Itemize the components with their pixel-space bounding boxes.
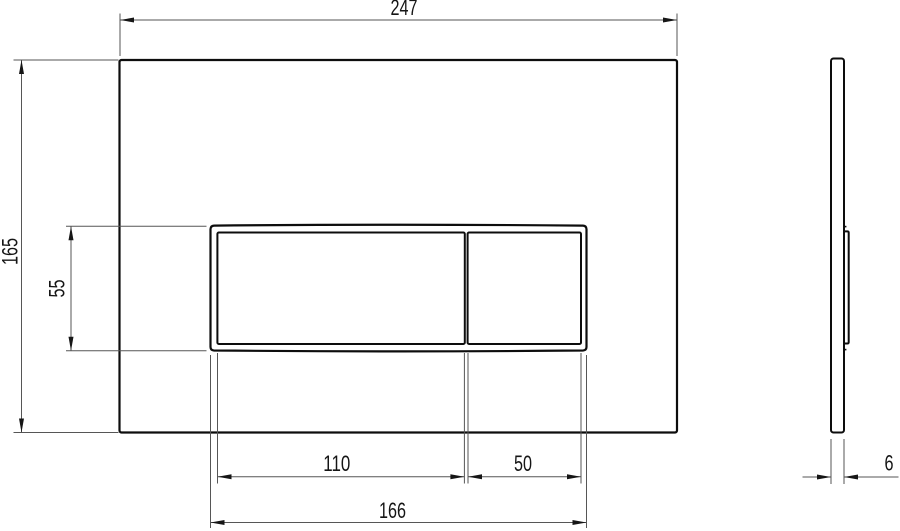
svg-text:110: 110 [323,451,350,476]
svg-text:50: 50 [514,451,532,476]
svg-text:166: 166 [379,498,406,523]
svg-text:165: 165 [0,238,23,265]
svg-text:6: 6 [885,451,894,476]
svg-text:55: 55 [45,280,70,298]
svg-text:247: 247 [391,0,418,20]
